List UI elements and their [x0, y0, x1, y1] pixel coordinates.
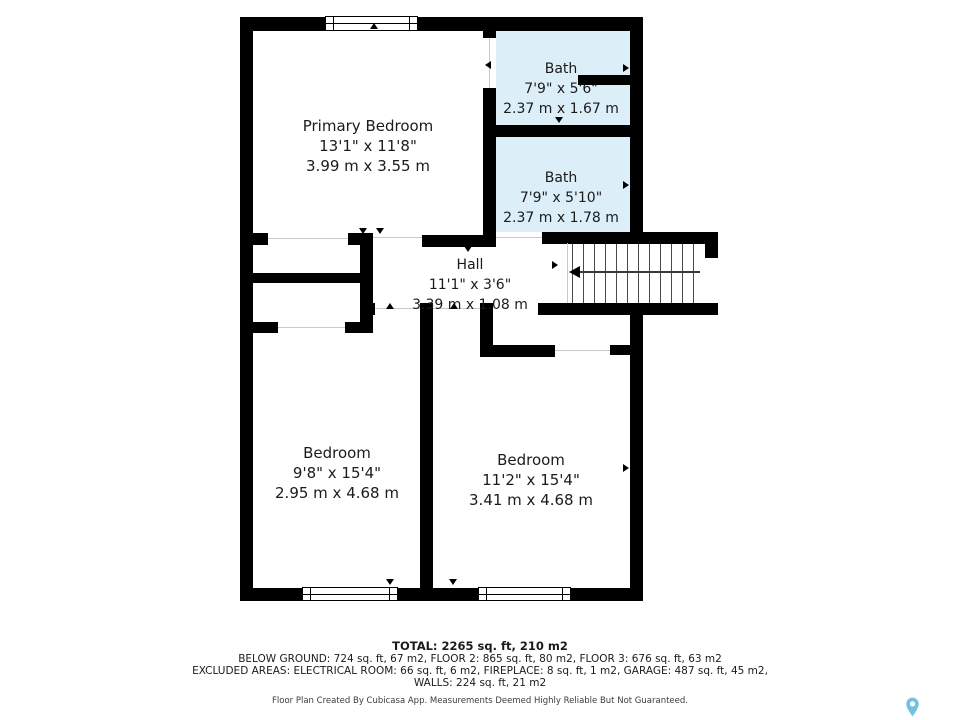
wall-closet-top-stub: [253, 233, 268, 245]
room-label-bath-1: Bath 7'9" x 5'6" 2.37 m x 1.67 m: [503, 59, 619, 119]
marker-bath2-right: [623, 181, 629, 189]
wall-right-lower: [630, 303, 643, 601]
room-name: Primary Bedroom: [303, 116, 434, 136]
summary-floors: BELOW GROUND: 724 sq. ft, 67 m2, FLOOR 2…: [0, 653, 960, 665]
marker-between-baths: [555, 117, 563, 123]
stairs-direction-arrow: [569, 266, 580, 278]
location-pin-icon: [905, 697, 920, 717]
room-dim-imperial: 7'9" x 5'10": [503, 188, 619, 208]
marker-top-window: [370, 23, 378, 29]
wall-left: [240, 17, 253, 601]
door-opening-rb-closet: [555, 350, 610, 351]
door-opening-closet-top: [268, 238, 348, 239]
wall-primary-bottom: [348, 233, 373, 245]
room-label-primary-bedroom: Primary Bedroom 13'1" x 11'8" 3.99 m x 3…: [303, 116, 434, 176]
room-label-bath-2: Bath 7'9" x 5'10" 2.37 m x 1.78 m: [503, 168, 619, 228]
marker-primary-left-wall: [246, 124, 252, 132]
marker-lb-door: [386, 303, 394, 309]
marker-br-window: [449, 579, 457, 585]
marker-bl-window: [386, 579, 394, 585]
wall-hall-top: [422, 235, 496, 247]
window-bottom-left: [302, 587, 398, 601]
room-dim-metric: 2.37 m x 1.67 m: [503, 99, 619, 119]
marker-bath2-left: [485, 181, 491, 189]
room-dim-imperial: 11'1" x 3'6": [412, 275, 528, 295]
floor-plan: Primary Bedroom 13'1" x 11'8" 3.99 m x 3…: [0, 0, 960, 720]
marker-rb-door: [450, 303, 458, 309]
window-bottom-right: [478, 587, 571, 601]
room-label-bedroom-right: Bedroom 11'2" x 15'4" 3.41 m x 4.68 m: [469, 450, 593, 510]
room-dim-metric: 3.99 m x 3.55 m: [303, 156, 434, 176]
wall-stairs-bottom: [538, 303, 718, 315]
marker-closet-wall: [359, 228, 367, 234]
wall-closet-mid: [253, 273, 363, 283]
room-dim-imperial: 13'1" x 11'8": [303, 136, 434, 156]
wall-bath1-stub: [578, 75, 643, 85]
stairs-direction-line: [578, 271, 700, 273]
wall-stairs-right-stub: [705, 232, 718, 258]
summary-walls: WALLS: 224 sq. ft, 21 m2: [0, 677, 960, 689]
wall-closet-right: [360, 235, 373, 333]
marker-bath1-right: [623, 64, 629, 72]
marker-stairs-entry: [552, 261, 558, 269]
room-label-hall: Hall 11'1" x 3'6" 3.39 m x 1.08 m: [412, 255, 528, 315]
wall-rb-closet-stub: [610, 345, 630, 355]
room-label-bedroom-left: Bedroom 9'8" x 15'4" 2.95 m x 4.68 m: [275, 443, 399, 503]
wall-bottom-2: [398, 588, 478, 601]
room-name: Bedroom: [275, 443, 399, 463]
room-dim-imperial: 11'2" x 15'4": [469, 470, 593, 490]
marker-lb-left-wall: [246, 450, 252, 458]
wall-top: [240, 17, 643, 31]
room-name: Bath: [503, 168, 619, 188]
wall-hall-bottom-stub: [360, 303, 375, 315]
wall-rb-closet-bottom: [480, 345, 555, 357]
disclaimer-text: Floor Plan Created By Cubicasa App. Meas…: [0, 696, 960, 706]
wall-bath-left: [483, 88, 496, 247]
room-name: Hall: [412, 255, 528, 275]
marker-bath1-door: [485, 61, 491, 69]
marker-primary-door: [376, 228, 384, 234]
room-dim-metric: 3.39 m x 1.08 m: [412, 295, 528, 315]
wall-stairs-top: [542, 232, 718, 244]
wall-closet-bottom-right: [345, 322, 373, 333]
wall-between-bedrooms: [420, 303, 433, 601]
summary-excluded: EXCLUDED AREAS: ELECTRICAL ROOM: 66 sq. …: [0, 665, 960, 677]
door-opening-bath2: [496, 237, 542, 238]
wall-closet-bottom-left: [253, 322, 278, 333]
room-dim-metric: 2.95 m x 4.68 m: [275, 483, 399, 503]
room-dim-metric: 2.37 m x 1.78 m: [503, 208, 619, 228]
wall-bottom-1: [240, 588, 302, 601]
wall-between-baths: [483, 125, 643, 137]
door-opening-primary: [373, 237, 422, 238]
room-dim-metric: 3.41 m x 4.68 m: [469, 490, 593, 510]
door-opening-closet-bottom: [278, 327, 345, 328]
staircase: [572, 243, 704, 303]
summary-total: TOTAL: 2265 sq. ft, 210 m2: [0, 639, 960, 653]
marker-rb-right-wall: [623, 464, 629, 472]
room-name: Bedroom: [469, 450, 593, 470]
wall-bath-left-stub: [483, 17, 496, 38]
marker-bath2-door: [464, 246, 472, 252]
room-dim-imperial: 9'8" x 15'4": [275, 463, 399, 483]
door-opening-stairs: [567, 243, 568, 303]
